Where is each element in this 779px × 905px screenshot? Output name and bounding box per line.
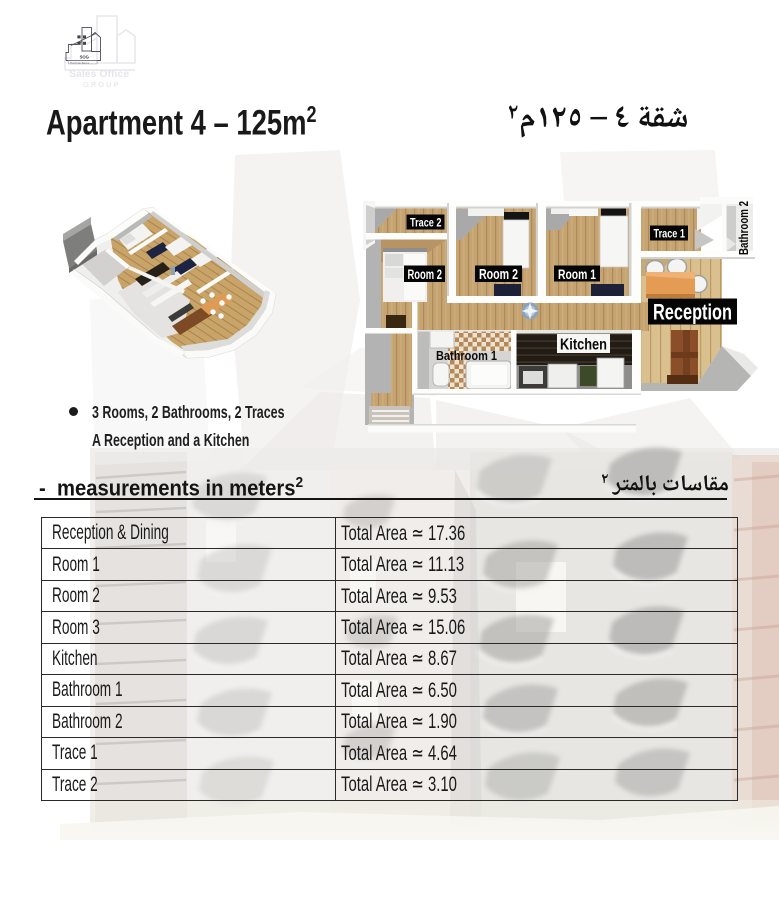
svg-text:Kitchen: Kitchen [560,337,607,354]
svg-text:Room 2: Room 2 [479,267,518,283]
svg-text:Reception: Reception [653,300,732,325]
svg-text:Trace 1: Trace 1 [654,227,686,241]
svg-text:Trace 2: Trace 2 [410,216,442,230]
svg-text:Bathroom 1: Bathroom 1 [436,349,497,363]
svg-text:GROUP: GROUP [83,80,121,89]
svg-text:Room 1: Room 1 [558,266,596,282]
svg-text:Bathroom 2: Bathroom 2 [737,201,751,255]
svg-text:Room 2: Room 2 [408,267,443,282]
svg-text:SOG: SOG [80,55,89,60]
svg-text:Sales Office: Sales Office [69,68,129,80]
svg-text:Real Estate Agency: Real Estate Agency [70,61,90,64]
